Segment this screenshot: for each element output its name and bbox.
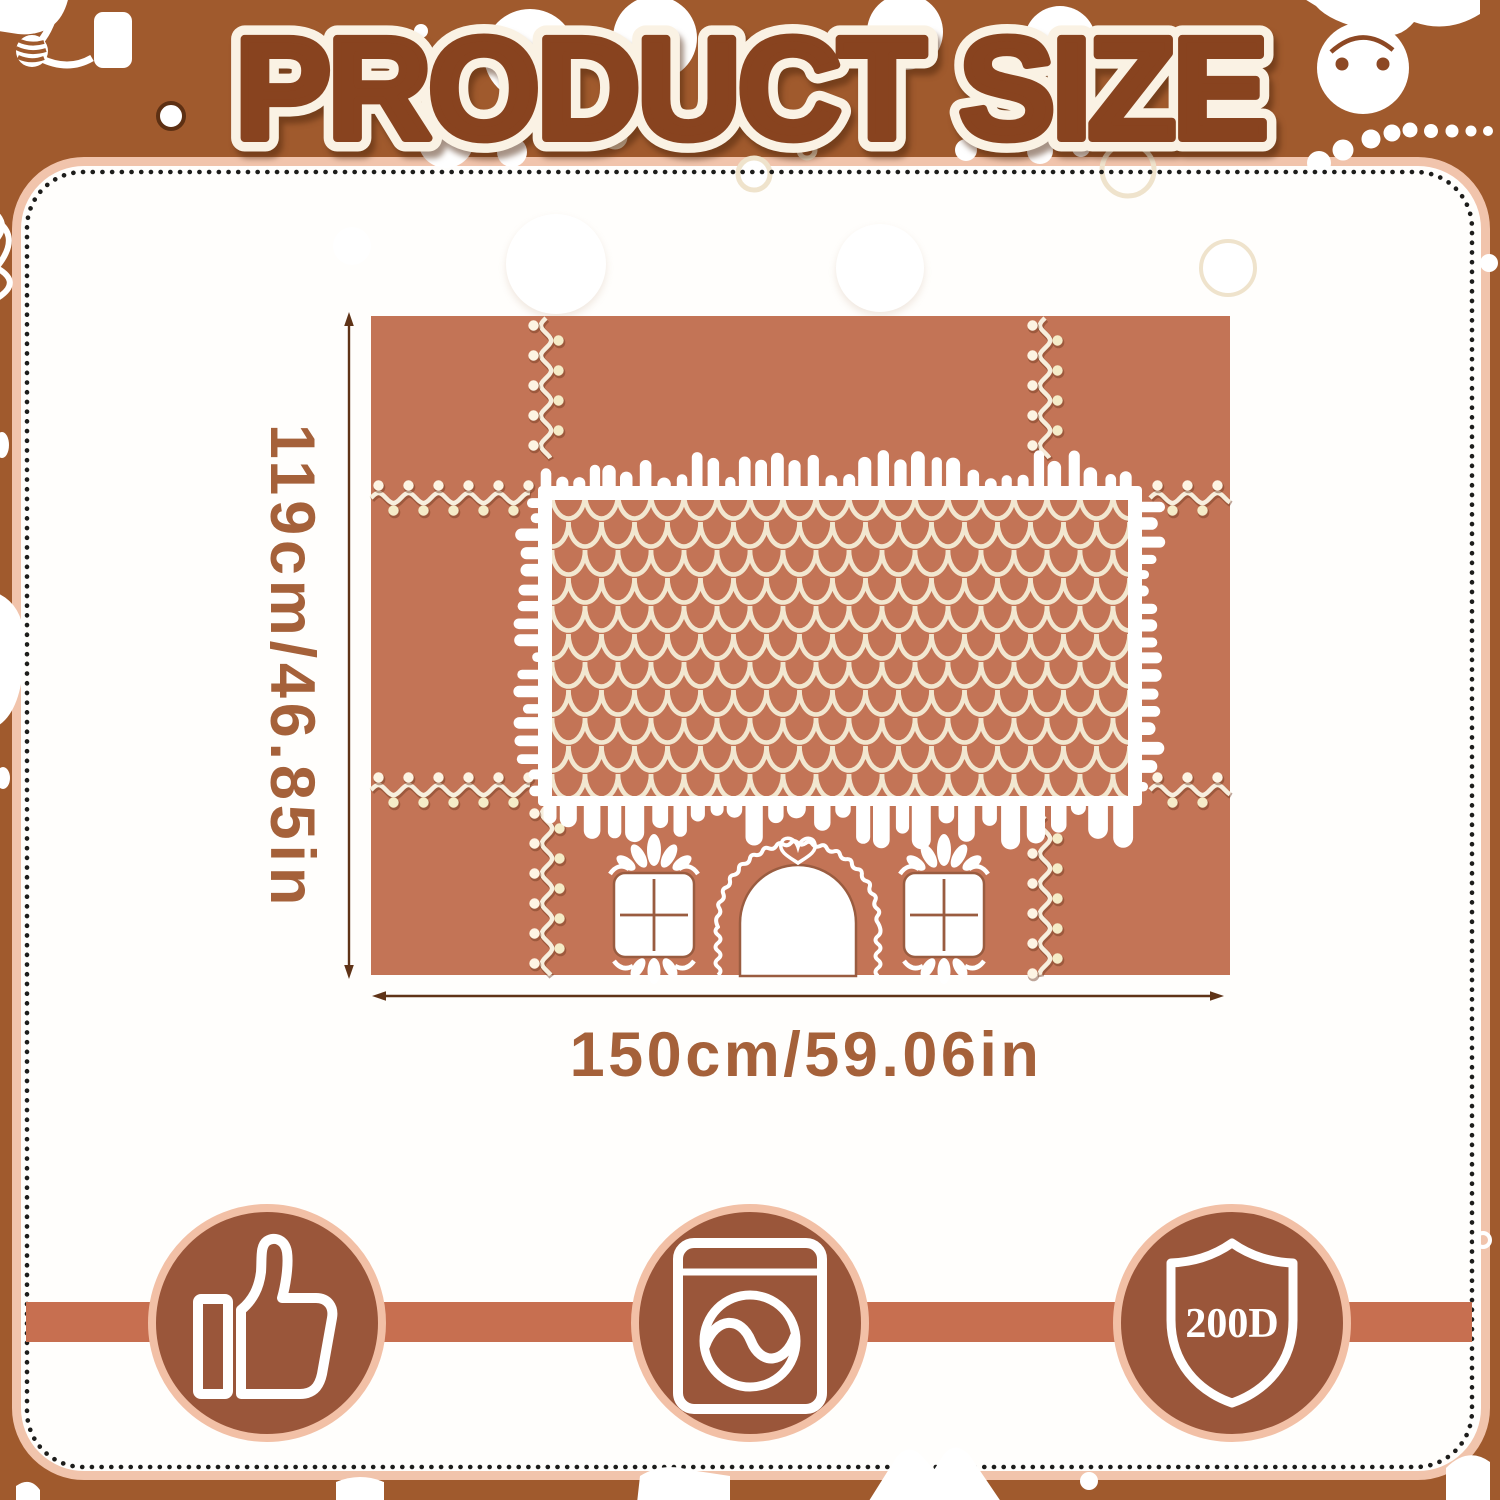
svg-text:119cm/46.85in: 119cm/46.85in <box>257 424 327 910</box>
svg-text:200D: 200D <box>1185 1301 1278 1347</box>
svg-text:150cm/59.06in: 150cm/59.06in <box>570 1020 1043 1090</box>
svg-text:PRODUCT SIZE: PRODUCT SIZE <box>235 8 1265 169</box>
